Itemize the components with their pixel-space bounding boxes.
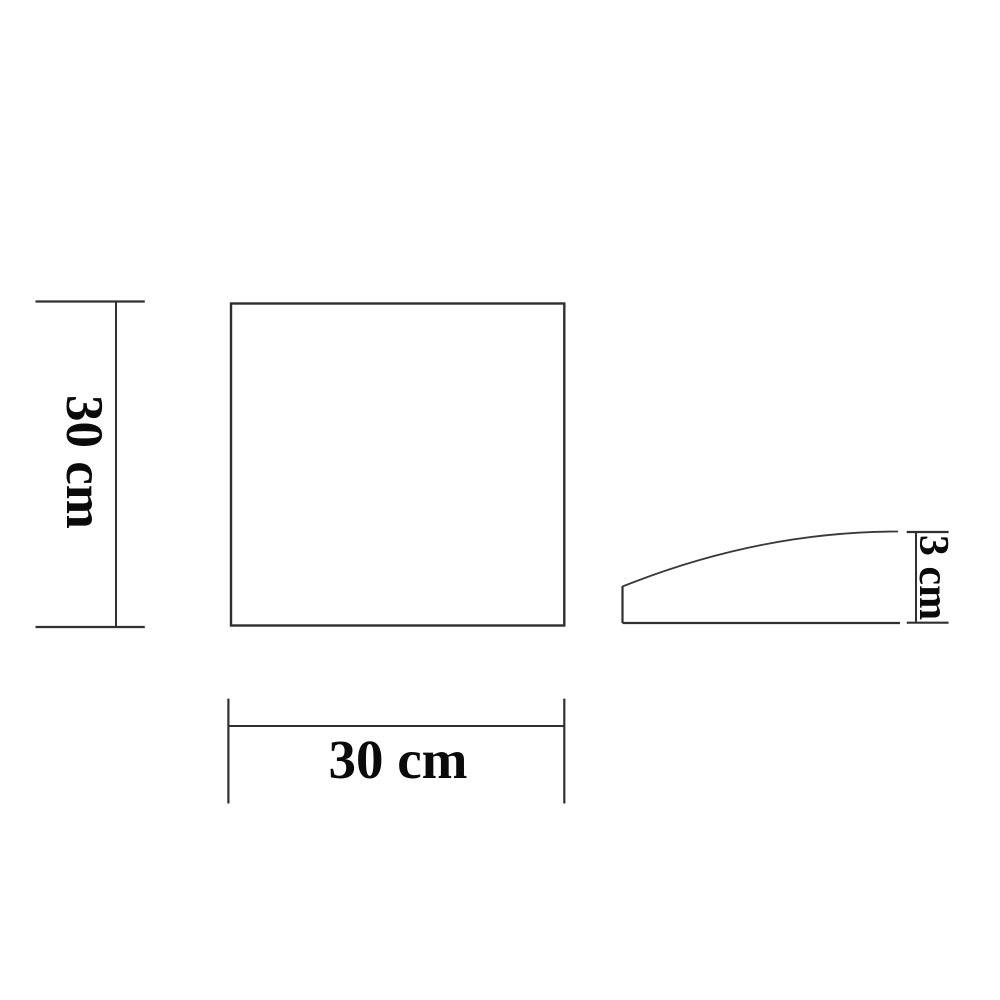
svg-text:3 cm: 3 cm <box>910 535 956 620</box>
svg-text:30 cm: 30 cm <box>329 729 468 790</box>
svg-text:30 cm: 30 cm <box>55 395 113 529</box>
